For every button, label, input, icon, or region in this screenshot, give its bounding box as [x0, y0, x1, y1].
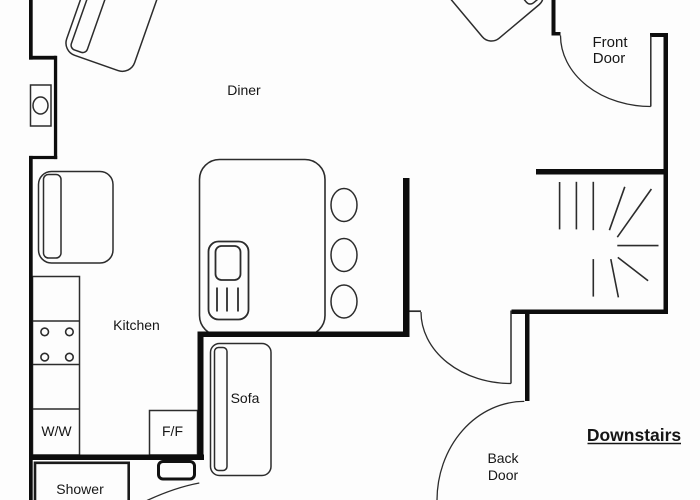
svg-text:Door: Door: [488, 467, 519, 483]
svg-text:Shower: Shower: [56, 481, 104, 497]
svg-text:Sofa: Sofa: [231, 390, 260, 406]
svg-text:Back: Back: [487, 450, 519, 466]
svg-text:Front: Front: [592, 34, 628, 51]
svg-text:Downstairs: Downstairs: [587, 425, 682, 445]
svg-text:F/F: F/F: [162, 423, 183, 439]
svg-text:W/W: W/W: [41, 423, 72, 439]
svg-text:Diner: Diner: [227, 82, 261, 98]
svg-text:Kitchen: Kitchen: [113, 317, 160, 333]
svg-text:Door: Door: [593, 50, 626, 67]
